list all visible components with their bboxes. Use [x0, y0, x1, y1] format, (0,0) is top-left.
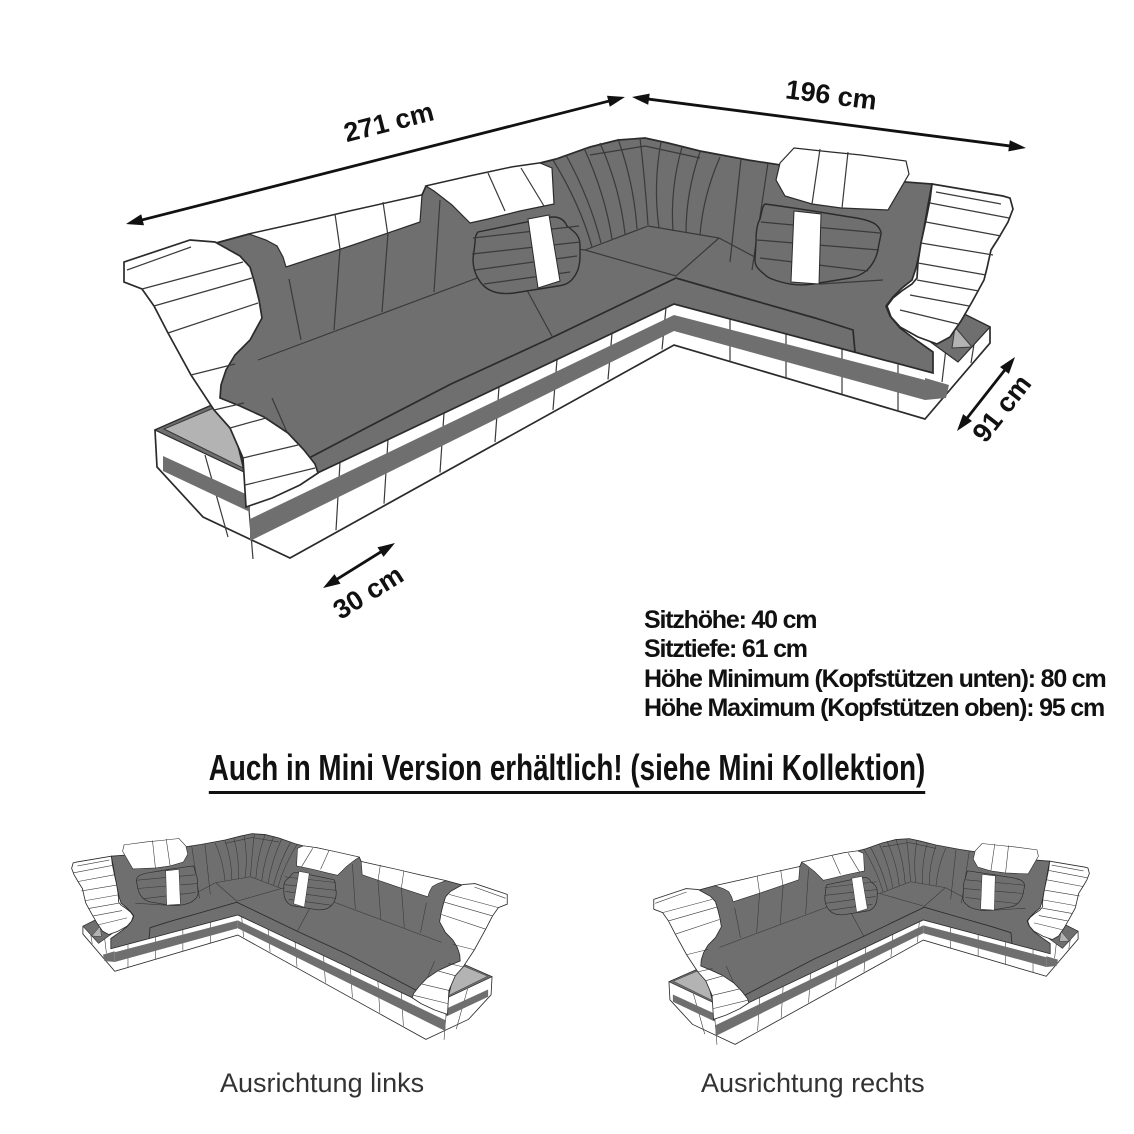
- svg-text:196 cm: 196 cm: [784, 74, 879, 116]
- svg-text:271 cm: 271 cm: [341, 96, 437, 148]
- svg-text:91 cm: 91 cm: [967, 369, 1038, 448]
- svg-text:30 cm: 30 cm: [328, 559, 409, 625]
